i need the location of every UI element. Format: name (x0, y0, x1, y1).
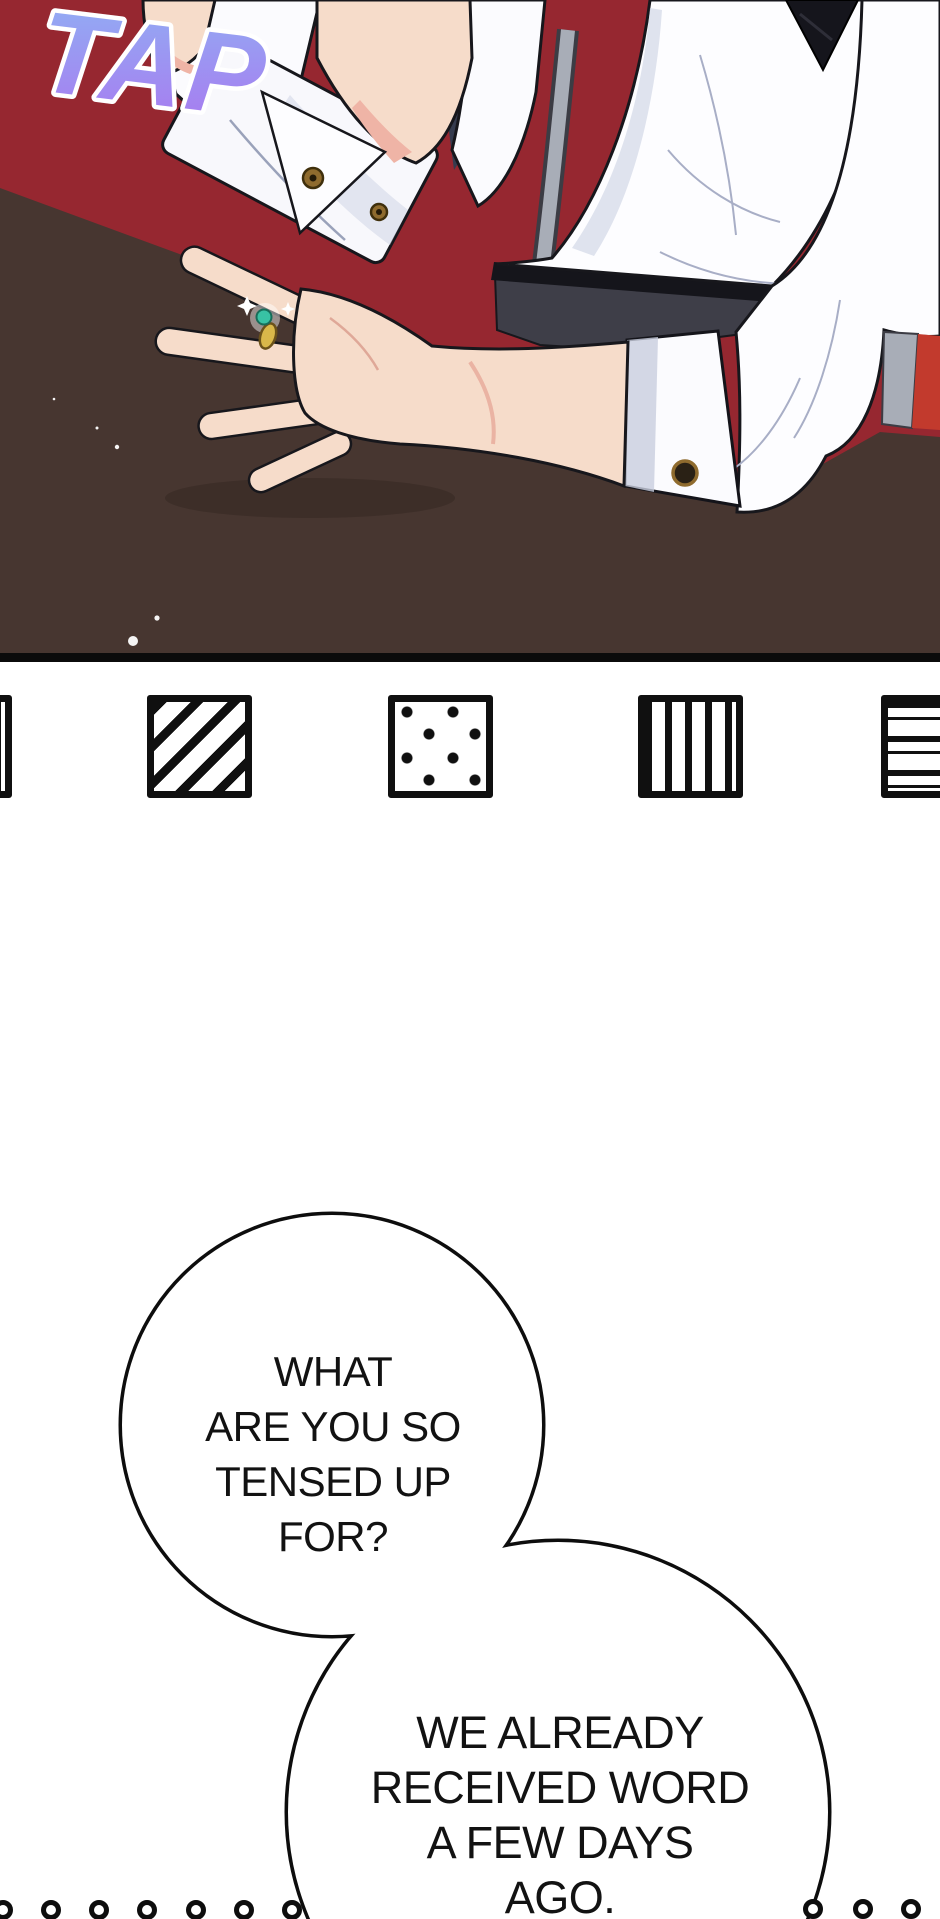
chair-frame-right (882, 332, 918, 428)
speech-bubble-2-text: WE ALREADY RECEIVED WORD A FEW DAYS AGO. (340, 1705, 780, 1919)
speech-bubble-1-text: WHAT ARE YOU SO TENSED UP FOR? (133, 1344, 533, 1564)
pattern-square-vertical (638, 695, 743, 798)
shirt-cuff (625, 331, 740, 506)
comic-page: TAP WHAT ARE YOU SO TENSED UP (0, 0, 940, 1919)
pattern-square-horizontal (881, 695, 940, 798)
pattern-square-dots (388, 695, 493, 798)
panel-illustration: TAP (0, 0, 940, 662)
pattern-square-vertical-partial (0, 695, 12, 798)
panel-bottom-border (0, 653, 940, 662)
hand-shadow (165, 478, 455, 518)
pattern-square-diagonal (147, 695, 252, 798)
